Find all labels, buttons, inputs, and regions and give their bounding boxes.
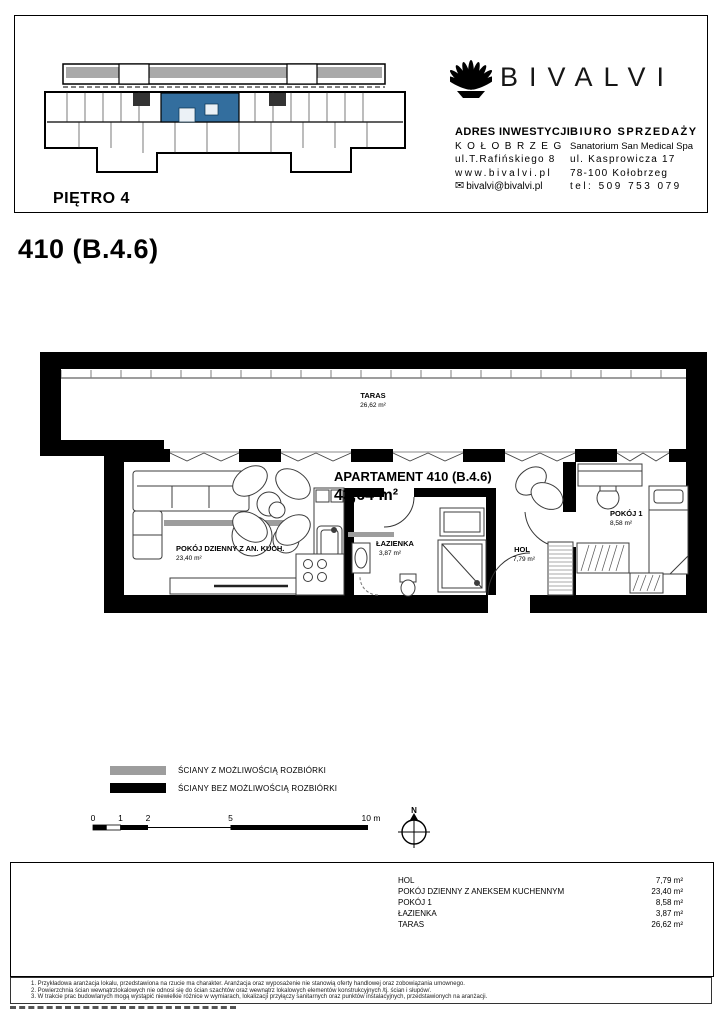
living-room-area: 23,40 m² <box>176 555 202 562</box>
investment-title: ADRES INWESTYCJI <box>455 126 570 140</box>
taras-label: TARAS <box>360 391 385 400</box>
summary-room-row: TARAS 26,62 m² <box>398 920 683 931</box>
mini-highlighted-unit <box>161 93 239 122</box>
apartment-floor-plan: TARAS 26,62 m² APARTAMENT 410 (B.4.6) 43… <box>0 340 723 650</box>
room-area: 8,58 m² <box>656 898 683 907</box>
scale-tick-2: 2 <box>146 813 151 823</box>
sales-phone: tel: 509 753 079 <box>570 180 698 194</box>
summary-table: LOKAL APARTAMENTOWY NR 410 (B.4.6) DWA P… <box>10 862 714 977</box>
room-area: 7,79 m² <box>656 876 683 885</box>
room-name: HOL <box>398 876 414 885</box>
mini-floor-plan <box>33 56 433 181</box>
summary-room-row: HOL 7,79 m² <box>398 876 683 887</box>
apartment-label: APARTAMENT 410 (B.4.6) <box>334 469 492 484</box>
summary-room-row: POKÓJ DZIENNY Z ANEKSEM KUCHENNYM 23,40 … <box>398 887 683 898</box>
dashed-line-artifact <box>10 1006 236 1009</box>
legend-gray-swatch <box>110 766 166 775</box>
entrance-door-gap <box>488 595 530 613</box>
footnote-3: 3. W trakcie prac budowlanych mogą wystą… <box>31 994 711 1001</box>
room1-label: POKÓJ 1 <box>610 509 643 518</box>
sales-line-3: 78-100 Kołobrzeg <box>570 167 698 181</box>
summary-room-row: POKÓJ 1 8,58 m² <box>398 898 683 909</box>
bathroom-fixtures <box>352 508 486 596</box>
scale-tick-5: 5 <box>228 813 233 823</box>
walls-legend: ŚCIANY Z MOŻLIWOŚCIĄ ROZBIÓRKI ŚCIANY BE… <box>110 764 337 794</box>
taras-area: 26,62 m² <box>360 402 386 409</box>
floor-label: PIĘTRO 4 <box>53 190 130 208</box>
room-area: 26,62 m² <box>651 920 683 929</box>
sales-line-1: Sanatorium San Medical Spa <box>570 140 698 154</box>
investment-address-block: ADRES INWESTYCJI KOŁOBRZEG ul.T.Rafiński… <box>455 126 570 194</box>
room-area: 3,87 m² <box>656 909 683 918</box>
room-name: TARAS <box>398 920 424 929</box>
room1-area: 8,58 m² <box>610 520 633 527</box>
legend-black-label: ŚCIANY BEZ MOŻLIWOŚCIĄ ROZBIÓRKI <box>178 784 337 793</box>
sales-office-block: BIURO SPRZEDAŻY Sanatorium San Medical S… <box>570 126 698 194</box>
footnote-1: 1. Przykładowa aranżacja lokalu, przedst… <box>31 981 711 988</box>
page-title: 410 (B.4.6) <box>18 234 159 265</box>
terrace-railing <box>61 370 686 378</box>
hall-area: 7,79 m² <box>513 556 536 563</box>
scale-tick-1: 1 <box>118 813 123 823</box>
summary-room-row: ŁAZIENKA 3,87 m² <box>398 909 683 920</box>
footnote-2: 2. Powierzchnia ścian wewnątrzlokalowych… <box>31 988 711 995</box>
sales-line-2: ul. Kasprowicza 17 <box>570 153 698 167</box>
room-name: POKÓJ DZIENNY Z ANEKSEM KUCHENNYM <box>398 887 564 896</box>
hall-label: HOL <box>514 545 530 554</box>
scale-bar: 0 1 2 5 10 m <box>85 810 385 838</box>
brand-wordmark: BIVALVI <box>500 62 675 93</box>
north-compass-icon: N <box>394 804 434 852</box>
footnotes-box: 1. Przykładowa aranżacja lokalu, przedst… <box>10 977 712 1004</box>
shell-logo-icon <box>450 55 492 101</box>
legend-gray-label: ŚCIANY Z MOŻLIWOŚCIĄ ROZBIÓRKI <box>178 766 326 775</box>
scale-tick-0: 0 <box>91 813 96 823</box>
kitchen-furniture <box>296 488 344 595</box>
investment-website: www.bivalvi.pl <box>455 167 570 181</box>
bathroom-area: 3,87 m² <box>379 550 402 557</box>
legend-row-non-demolishable: ŚCIANY BEZ MOŻLIWOŚCIĄ ROZBIÓRKI <box>110 782 337 794</box>
investment-email: bivalvi@bivalvi.pl <box>466 181 542 192</box>
bathroom-label: ŁAZIENKA <box>376 539 414 548</box>
legend-row-demolishable: ŚCIANY Z MOŻLIWOŚCIĄ ROZBIÓRKI <box>110 764 337 776</box>
living-room-label: POKÓJ DZIENNY Z AN. KUCH. <box>176 544 284 553</box>
legend-black-swatch <box>110 783 166 793</box>
sales-title: BIURO SPRZEDAŻY <box>570 126 698 140</box>
scale-tick-10: 10 m <box>362 813 381 823</box>
room-area: 23,40 m² <box>651 887 683 896</box>
investment-email-row: ✉bivalvi@bivalvi.pl <box>455 180 570 194</box>
apartment-area: 43,64 m² <box>334 487 398 504</box>
floorplan-document-page: PIĘTRO 4 BIVALVI ADRES INWESTYCJI KOŁOBR… <box>0 0 723 1023</box>
investment-street: ul.T.Rafińskiego 8 <box>455 153 570 167</box>
room-name: POKÓJ 1 <box>398 898 432 907</box>
room-name: ŁAZIENKA <box>398 909 437 918</box>
bedroom-furniture <box>577 464 688 593</box>
living-room-furniture <box>133 459 316 594</box>
envelope-icon: ✉ <box>455 180 464 192</box>
investment-city: KOŁOBRZEG <box>455 140 570 154</box>
mini-terrace-band <box>66 67 382 78</box>
